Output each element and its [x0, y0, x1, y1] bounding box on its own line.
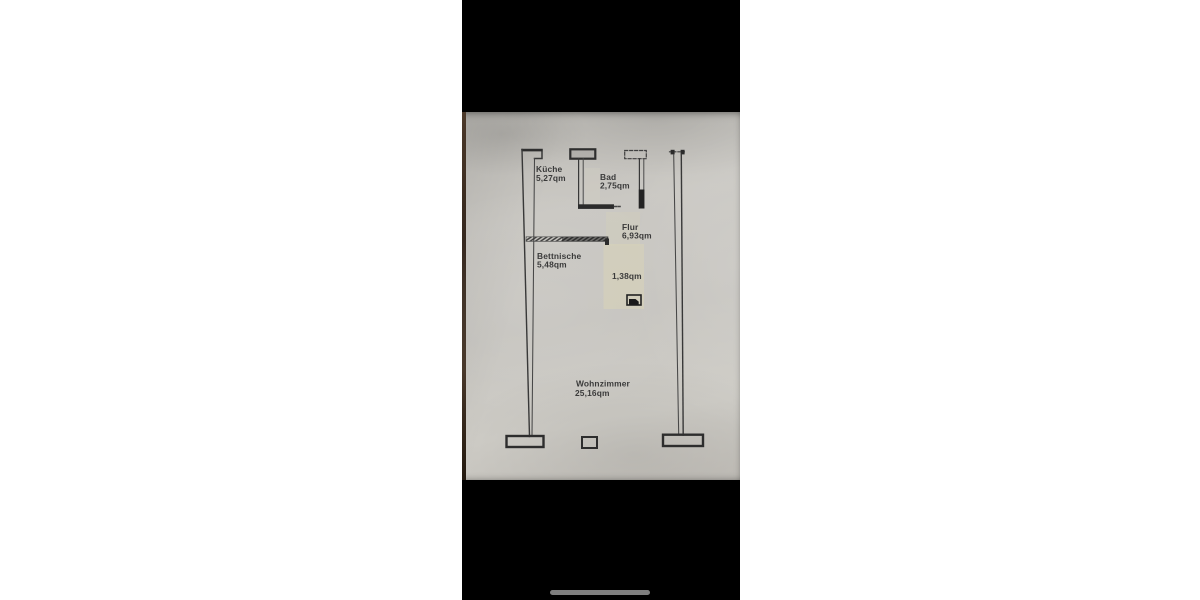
right-wall-inner-line: [674, 155, 679, 436]
right-wall-outer-line: [681, 155, 683, 436]
room-area-bad: 2,75qm: [600, 181, 630, 191]
bath-right-foot: [639, 190, 645, 209]
room-area-nische: 1,38qm: [612, 271, 642, 281]
left-wall: [507, 150, 544, 448]
screenshot-canvas: Küche 5,27qm Bad 2,75qm Flur 6,93qm Bett…: [0, 0, 1200, 600]
left-wall-footing: [507, 436, 544, 447]
room-area-kueche: 5,27qm: [536, 173, 566, 183]
right-wall-footing: [663, 435, 703, 446]
bath-right-cap: [625, 151, 647, 159]
phone-screenshot-frame: Küche 5,27qm Bad 2,75qm Flur 6,93qm Bett…: [462, 0, 740, 600]
floor-plan-photo[interactable]: Küche 5,27qm Bad 2,75qm Flur 6,93qm Bett…: [462, 112, 740, 480]
left-wall-inner-line: [532, 159, 535, 437]
room-label-wohnzimmer: Wohnzimmer: [576, 379, 631, 389]
room-area-flur: 6,93qm: [622, 231, 652, 241]
partition-dark-section: [562, 237, 608, 242]
right-wall-cap-mark-right: [681, 150, 685, 155]
home-indicator[interactable]: [550, 590, 650, 595]
bath-right-wall: [625, 151, 647, 209]
room-area-wohnzimmer: 25,16qm: [575, 388, 610, 398]
floor-plan-drawing: Küche 5,27qm Bad 2,75qm Flur 6,93qm Bett…: [462, 112, 740, 480]
room-area-bettnische: 5,48qm: [537, 260, 567, 270]
right-wall-cap-mark-left: [671, 150, 675, 155]
left-wall-outer-line: [522, 150, 530, 437]
bath-pillar-cap: [570, 149, 595, 158]
bath-bottom-wall: [578, 204, 614, 209]
bottom-center-pillar: [582, 437, 597, 448]
right-wall: [663, 150, 703, 446]
highlight-patch-bad: [585, 168, 600, 206]
partition-end-hook: [605, 239, 609, 246]
bettnische-partition: [526, 237, 609, 245]
